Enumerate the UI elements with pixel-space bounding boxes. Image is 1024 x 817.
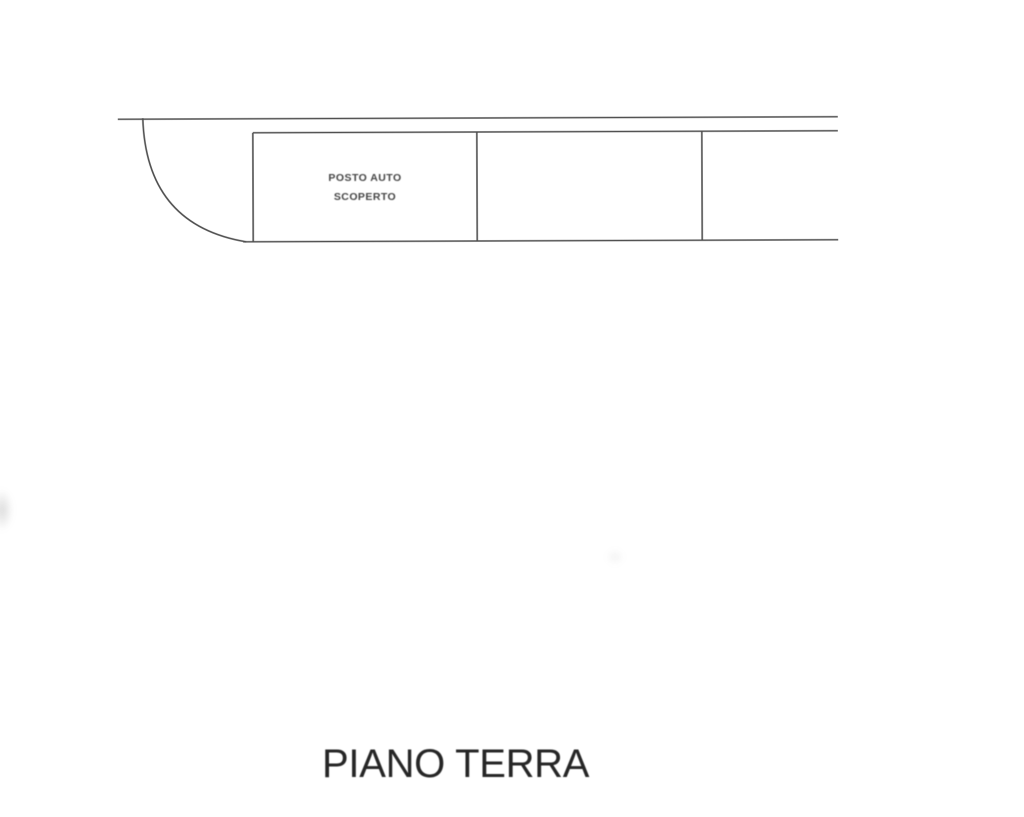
- parking-space-label-line2: SCOPERTO: [253, 188, 477, 207]
- stall-block-top-line: [253, 131, 838, 133]
- floor-title: PIANO TERRA: [322, 744, 589, 784]
- parking-space-label: POSTO AUTO SCOPERTO: [253, 169, 477, 207]
- floorplan-drawing: [0, 0, 1024, 817]
- scan-artifact-middle: [606, 549, 624, 565]
- scanned-floorplan-page: POSTO AUTO SCOPERTO PIANO TERRA: [0, 0, 1024, 817]
- parking-space-label-line1: POSTO AUTO: [253, 169, 477, 188]
- curved-lot-edge: [143, 118, 246, 242]
- stall-block-bottom-line: [243, 240, 838, 242]
- boundary-top-line: [118, 117, 838, 120]
